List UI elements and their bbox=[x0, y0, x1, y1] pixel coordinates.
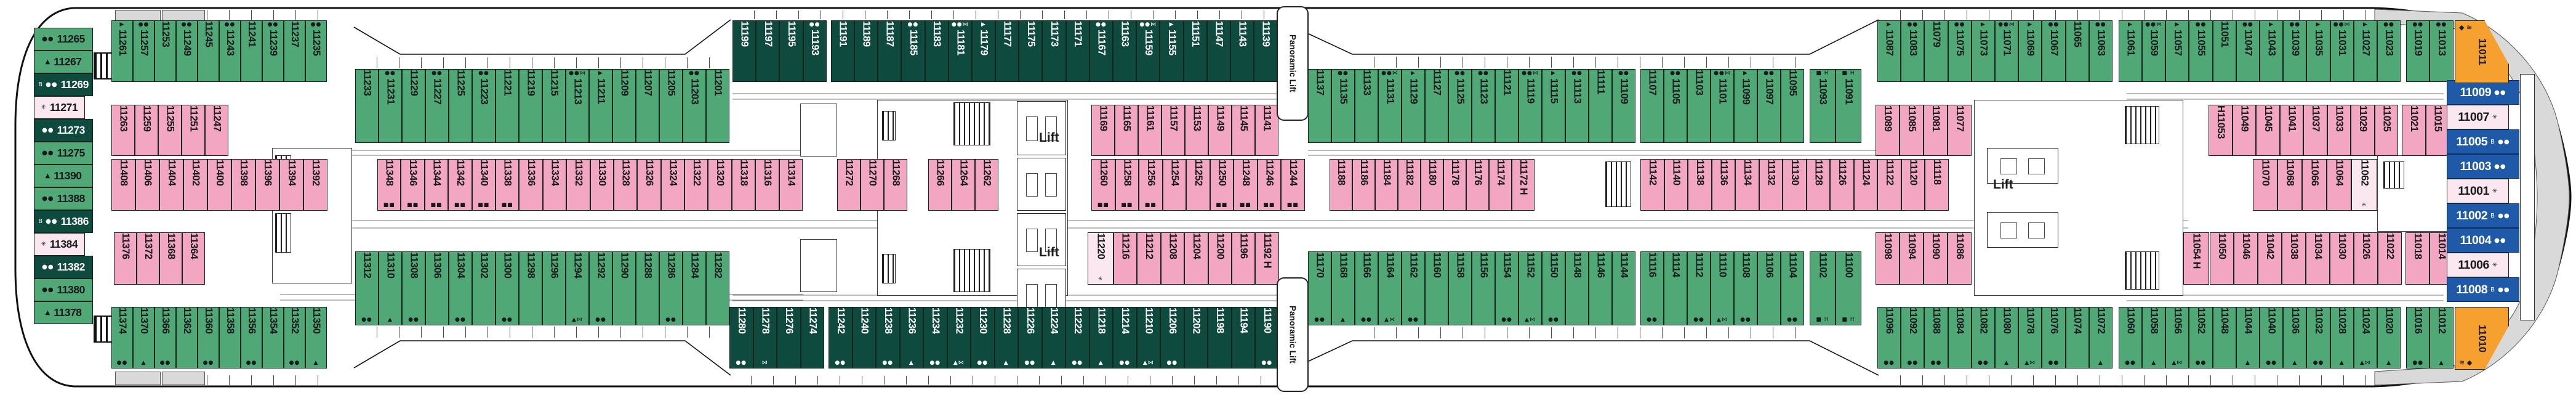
cabin-feature-icons: ▶ bbox=[120, 21, 125, 30]
cabin-11039: ●●11039 bbox=[2283, 20, 2306, 82]
cabin-number: 11112 bbox=[1693, 252, 1705, 316]
cabin-11144: 11144 bbox=[1612, 251, 1635, 325]
cabin-11267: ▲11267 bbox=[34, 51, 93, 73]
cabin-feature-icons: ●● bbox=[1618, 70, 1629, 78]
cabin-11274: 11274 bbox=[801, 307, 825, 369]
cabin-number: 11247 bbox=[211, 105, 223, 155]
cabin-number: 11278 bbox=[759, 307, 771, 359]
cabin-number: 11094 bbox=[1906, 233, 1917, 284]
cabin-feature-icons: ●●⋈ bbox=[2333, 21, 2351, 30]
cabin-11149: 11149 bbox=[1208, 105, 1232, 156]
cabin-number: 11269 bbox=[61, 78, 89, 91]
cabin-11059: ●●⋈11059 bbox=[2142, 20, 2165, 82]
lift-label: Lift bbox=[1039, 245, 1059, 260]
cabin-number: 11118 bbox=[1931, 160, 1943, 210]
staircase-icon bbox=[882, 111, 896, 140]
cabin-11244: 11244■■ bbox=[1281, 159, 1305, 211]
cabin-number: 11312 bbox=[361, 252, 373, 316]
cabin-number: 11186 bbox=[1358, 160, 1370, 210]
cabin-feature-icons: ●● bbox=[1647, 316, 1658, 325]
cabin-11042: 11042 bbox=[2258, 232, 2282, 285]
cabin-feature-icons: ●● bbox=[1166, 359, 1178, 368]
cabin-number: 11176 bbox=[1472, 160, 1483, 210]
cabin-11096: 11096●● bbox=[1877, 307, 1901, 369]
cabin-feature-icons: ▲ bbox=[2245, 359, 2250, 368]
cabin-feature-icons: ●● bbox=[2412, 359, 2423, 368]
cabin-number: 11119 bbox=[1525, 78, 1536, 142]
cabin-11125: ●●11125 bbox=[1448, 69, 1472, 143]
cabin-number: 11154 bbox=[1501, 252, 1513, 316]
cabin-11092: 11092●● bbox=[1901, 307, 1924, 369]
cabin-11258: 11258■■ bbox=[1115, 159, 1139, 211]
cabin-number: 11180 bbox=[1426, 160, 1438, 210]
cabin-11035: ▶11035 bbox=[2306, 20, 2330, 82]
cabin-number: 11294 bbox=[572, 252, 584, 316]
cabin-feature-icons: ●● bbox=[2313, 359, 2324, 368]
cabin-number: 11231 bbox=[385, 78, 396, 142]
cabin-11049: 11049 bbox=[2233, 105, 2257, 156]
cabin-11054H: 11054 H bbox=[2183, 232, 2209, 285]
cabin-number: 11052 bbox=[2195, 307, 2207, 359]
cabin-11406: 11406 bbox=[135, 159, 159, 211]
cabin-number: 11130 bbox=[1789, 160, 1800, 210]
cabin-number: 11350 bbox=[310, 307, 322, 359]
cabin-11115: ▶11115 bbox=[1542, 69, 1565, 143]
cabin-feature-icons: ▲⋈ bbox=[953, 359, 965, 368]
cabin-number: 11334 bbox=[548, 160, 560, 210]
staircase-icon bbox=[2125, 106, 2159, 144]
cabin-11099: ▶11099 bbox=[1734, 69, 1757, 143]
cabin-11027: ▶11027 bbox=[2354, 20, 2377, 82]
cabin-feature-icons: ●● bbox=[1670, 70, 1681, 78]
cabin-number: 11046 bbox=[2240, 233, 2252, 284]
cabin-11266: 11266 bbox=[928, 159, 952, 211]
cabin-11166: 11166●● bbox=[1355, 251, 1378, 325]
cabin-number: 11205 bbox=[665, 70, 677, 142]
cabin-11179: ▶11179 bbox=[972, 20, 995, 82]
stern-row-a: 1126311259112551125111247 bbox=[111, 105, 228, 156]
cabin-number: 11362 bbox=[181, 307, 193, 368]
cabin-11358: 11358 bbox=[219, 307, 241, 369]
hull-gray-cell bbox=[115, 372, 161, 385]
cabin-11060: 11060●● bbox=[2119, 307, 2142, 369]
cabin-11151: 11151 bbox=[1184, 20, 1207, 82]
cabin-feature-icons: ●● bbox=[2125, 359, 2136, 368]
cabin-feature-icons: ●● bbox=[289, 359, 300, 368]
cabin-number: 11392 bbox=[310, 160, 321, 210]
cabin-11226: 11226●● bbox=[1018, 307, 1042, 369]
cabin-number: 11076 bbox=[2048, 307, 2060, 359]
cabin-11052: 11052●● bbox=[2189, 307, 2212, 369]
cabin-number: 11139 bbox=[1260, 21, 1272, 81]
cabin-11136: 11136 bbox=[1712, 159, 1736, 211]
cabin-number: 11081 bbox=[1930, 105, 1941, 155]
cabin-number: 11122 bbox=[1884, 160, 1895, 210]
cabin-number: 11268 bbox=[890, 160, 902, 210]
cabin-number: 11158 bbox=[1455, 252, 1466, 325]
cabin-number: 11087 bbox=[1884, 30, 1895, 81]
cabin-11025: 11025 bbox=[2375, 105, 2399, 156]
cabin-11146: 11146 bbox=[1589, 251, 1612, 325]
cabin-number: 11235 bbox=[310, 30, 322, 81]
cabin-number: 11149 bbox=[1214, 105, 1226, 155]
lift-bank bbox=[1017, 101, 1066, 155]
cabin-number: 11042 bbox=[2264, 233, 2276, 284]
bow-top-green-row: ▶11087●●1108311079●●11075▶11073●●⋈11071▶… bbox=[1877, 20, 2454, 82]
cabin-11215: 11215 bbox=[542, 69, 566, 143]
cabin-11131: ●●⋈11131 bbox=[1378, 69, 1402, 143]
cabin-number: 11156 bbox=[1478, 252, 1490, 325]
cabin-number: 11222 bbox=[1072, 307, 1083, 359]
cabin-number: 11394 bbox=[286, 160, 297, 210]
cabin-11232: 11232▲⋈ bbox=[947, 307, 971, 369]
cabin-feature-icons: ●● bbox=[1884, 359, 1895, 368]
row-b-11348: 11348■■11346■■11344■■11342■■11340■■11338… bbox=[377, 159, 803, 211]
cabin-11045: 11045 bbox=[2256, 105, 2280, 156]
cabin-11113: ●●11113 bbox=[1565, 69, 1589, 143]
cabin-feature-icons: ●● bbox=[1361, 316, 1372, 325]
cabin-11261: ▶11261 bbox=[111, 20, 133, 82]
cabin-11063: ●●11063 bbox=[2089, 20, 2113, 82]
cabin-11067: ●●11067 bbox=[2042, 20, 2065, 82]
cabin-number: 11342 bbox=[454, 160, 466, 202]
cabin-number: 11215 bbox=[548, 70, 560, 142]
cabin-number: 11157 bbox=[1168, 105, 1179, 155]
cabin-11107: 11107 bbox=[1640, 69, 1664, 143]
cabin-number: 11388 bbox=[57, 192, 85, 205]
mid-top-h-cabins: ■ H11093■ H11091 bbox=[1810, 69, 1861, 143]
row-divider bbox=[2113, 20, 2119, 82]
cabin-number: 11113 bbox=[1571, 78, 1583, 142]
cabin-11187: 11187 bbox=[878, 20, 901, 82]
cabin-number: 11239 bbox=[267, 30, 279, 81]
cabin-number: 11110 bbox=[1717, 252, 1728, 316]
cabin-number: 11147 bbox=[1213, 21, 1224, 81]
cabin-number: 11115 bbox=[1548, 78, 1560, 142]
cabin-number: 11192 H bbox=[1261, 233, 1273, 284]
cabin-11100: 11100■ H bbox=[1836, 251, 1861, 325]
cabin-11238: 11238●● bbox=[876, 307, 900, 369]
cabin-feature-icons: ■■ bbox=[1216, 202, 1227, 210]
cabin-11183: 11183 bbox=[925, 20, 949, 82]
staircase-icon bbox=[275, 213, 291, 253]
cabin-11095: 11095 bbox=[1781, 69, 1804, 143]
cabin-number: 11059 bbox=[2148, 30, 2160, 81]
cabin-number: 11086 bbox=[1954, 233, 1965, 284]
cabin-11132: 11132 bbox=[1759, 159, 1783, 211]
cabin-feature-icons: ●● bbox=[1571, 70, 1583, 78]
cabin-number: 11031 bbox=[2336, 30, 2348, 81]
cabin-number: 11166 bbox=[1361, 252, 1373, 316]
cabin-feature-icons: ■■ bbox=[502, 202, 513, 210]
cabin-11370: 11370▲ bbox=[133, 307, 154, 369]
cabin-11392: 11392 bbox=[303, 159, 327, 211]
cabin-feature-icons: ●● bbox=[1096, 21, 1107, 30]
cabin-11242: 11242●● bbox=[829, 307, 853, 369]
stern-top-inset-row: 11233●●1123111229●●1122711225●●112231122… bbox=[355, 69, 729, 143]
cabin-11290: 11290 bbox=[612, 251, 636, 325]
cabin-number: 11194 bbox=[1237, 307, 1249, 368]
cabin-number: 11204 bbox=[1190, 233, 1202, 284]
cabin-11175: 11175 bbox=[1019, 20, 1042, 82]
cabin-number: 11216 bbox=[1120, 233, 1131, 284]
cabin-number: 11332 bbox=[572, 160, 584, 210]
cabin-11268: 11268 bbox=[884, 159, 907, 211]
cabin-number: 11200 bbox=[1214, 233, 1226, 284]
row-b-11188: 1118811186111841118211180111781117611174… bbox=[1330, 159, 1535, 211]
cabin-11182: 11182 bbox=[1398, 159, 1421, 211]
cabin-feature-icons: ■ H bbox=[1842, 70, 1855, 78]
cabin-number: 11308 bbox=[408, 252, 420, 316]
cabin-feature-icons: ▲ bbox=[1099, 359, 1104, 368]
cabin-number: 11121 bbox=[1501, 70, 1513, 142]
cabin-11134: 11134 bbox=[1735, 159, 1759, 211]
lift-bank bbox=[1017, 158, 1066, 211]
cabin-number: 11071 bbox=[2001, 30, 2013, 81]
cabin-number: 11336 bbox=[525, 160, 537, 210]
cabin-feature-icons: ■■ bbox=[1287, 202, 1299, 210]
cabin-feature-icons: ●● bbox=[1931, 359, 1942, 368]
lift-bank bbox=[1987, 212, 2058, 248]
cabin-number: 11330 bbox=[596, 160, 608, 210]
cabin-11304: 11304●● bbox=[449, 251, 472, 325]
cabin-11324: 11324 bbox=[661, 159, 684, 211]
cabin-11246: 11246■■ bbox=[1258, 159, 1282, 211]
cabin-feature-icons: ●● bbox=[385, 70, 396, 78]
cabin-feature-icons: ●● bbox=[908, 21, 919, 30]
cabin-number: 11111 bbox=[1595, 70, 1607, 142]
cabin-11372: 11372 bbox=[137, 232, 159, 285]
cabin-11062: 11062✳ bbox=[2351, 159, 2377, 211]
cabin-number: 11240 bbox=[858, 307, 870, 368]
cabin-feature-icons: ●● bbox=[182, 21, 193, 30]
cabin-number: 11340 bbox=[478, 160, 489, 202]
cabin-feature-icons: ✳ bbox=[41, 104, 46, 111]
cabin-11190: 11190●● bbox=[1255, 307, 1279, 369]
cabin-feature-icons: ●● bbox=[595, 316, 606, 325]
cabin-feature-icons: ●● bbox=[455, 316, 466, 325]
cabin-11362: 11362 bbox=[176, 307, 198, 369]
cabin-11273: ●●11273 bbox=[34, 119, 93, 142]
cabin-number: 11107 bbox=[1647, 70, 1658, 142]
cabin-number: 11199 bbox=[739, 21, 750, 81]
cabin-number: 11098 bbox=[1882, 233, 1893, 284]
cabin-11330: 11330 bbox=[590, 159, 614, 211]
cabin-number: 11252 bbox=[1192, 160, 1204, 210]
cabin-11044: 11044▲ bbox=[2236, 307, 2260, 369]
cabin-feature-icons: ●● bbox=[1119, 359, 1130, 368]
cabin-number: 11124 bbox=[1860, 160, 1871, 210]
cabin-number: 11004 bbox=[2460, 234, 2491, 248]
cabin-number: 11404 bbox=[166, 160, 177, 210]
cabin-11380: ●●11380 bbox=[34, 279, 93, 301]
stern-suites-column: ●●11265▲11267B ●●11269✳11271●●11273●●112… bbox=[34, 28, 93, 324]
cabin-11128: 11128 bbox=[1807, 159, 1831, 211]
cabin-number: 11189 bbox=[861, 21, 872, 81]
cabin-11348: 11348■■ bbox=[377, 159, 401, 211]
cabin-feature-icons: ≋ ◆ bbox=[2459, 359, 2472, 367]
teal-top-row: 111991119711195●●11193111911118911187●●1… bbox=[732, 20, 1277, 82]
cabin-number: 11104 bbox=[1787, 252, 1799, 316]
cabin-number: 11084 bbox=[1954, 307, 1965, 368]
cabin-11390: ▲11390 bbox=[34, 165, 93, 187]
cabin-number: 11102 bbox=[1817, 252, 1829, 316]
bow-row-c: 1105011046110421103811034110301102611022… bbox=[2210, 232, 2454, 285]
cabin-feature-icons: ●● bbox=[2095, 21, 2106, 30]
cabin-feature-icons: ▲ bbox=[388, 316, 393, 325]
cabin-number: 11043 bbox=[2266, 30, 2277, 81]
cabin-11192H: 11192 H bbox=[1255, 232, 1278, 285]
cabin-feature-icons: ▲ bbox=[2340, 359, 2345, 368]
row-b-11142: 1114211140111381113611134111321113011128… bbox=[1640, 159, 1949, 211]
stern-top-outer-row: ▶11261●●1125711253●●1124911245●●11243112… bbox=[111, 20, 327, 82]
cabin-11162: 11162●● bbox=[1402, 251, 1425, 325]
cabin-11024: 11024▲⋈ bbox=[2354, 307, 2377, 369]
cabin-11191: 11191 bbox=[831, 20, 854, 82]
cabin-11364: 11364 bbox=[182, 232, 205, 285]
cabin-11003: 11003●● bbox=[2447, 154, 2519, 179]
cabin-feature-icons: ●● bbox=[1548, 316, 1559, 325]
cabin-11203: ●●11203 bbox=[683, 69, 706, 143]
cabin-feature-icons: ▶ bbox=[2028, 21, 2032, 30]
cabin-11046: 11046 bbox=[2234, 232, 2258, 285]
cabin-number: 11265 bbox=[57, 33, 85, 46]
cabin-11222: 11222●● bbox=[1065, 307, 1089, 369]
cabin-11137: 11137 bbox=[1308, 69, 1331, 143]
cabin-11218: 11218▲ bbox=[1089, 307, 1113, 369]
cabin-number: 11123 bbox=[1478, 78, 1490, 142]
cabin-number: 11348 bbox=[383, 160, 395, 202]
cabin-number: 11179 bbox=[977, 30, 989, 81]
cabin-number: 11218 bbox=[1095, 307, 1107, 359]
cabin-number: 11212 bbox=[1143, 233, 1155, 284]
cabin-number: 11202 bbox=[1190, 307, 1202, 368]
cabin-11153: 11153 bbox=[1185, 105, 1208, 156]
cabin-11037: 11037 bbox=[2303, 105, 2327, 156]
cabin-11312: 11312●● bbox=[355, 251, 379, 325]
cabin-number: 11151 bbox=[1189, 21, 1201, 81]
lift-label: Lift bbox=[1039, 131, 1059, 145]
cabin-11382: ●●11382 bbox=[34, 256, 93, 279]
mid-bottom-green-row: 11170●●11168▲11166●●11164▲⋈11162●●111601… bbox=[1308, 251, 1804, 325]
cabin-feature-icons: ●● bbox=[42, 264, 54, 271]
cabin-number: 11210 bbox=[1142, 307, 1154, 359]
cabin-number: 11152 bbox=[1525, 252, 1536, 316]
cabin-number: 11093 bbox=[1817, 78, 1829, 142]
cabin-11029: 11029 bbox=[2351, 105, 2375, 156]
row-divider bbox=[1635, 251, 1640, 325]
cabin-11278: 11278⋈ bbox=[753, 307, 777, 369]
cabin-11334: 11334 bbox=[543, 159, 566, 211]
cabin-11119: ●●⋈11119 bbox=[1519, 69, 1542, 143]
balcony-divider-strip bbox=[355, 327, 731, 338]
cabin-number: 11003 bbox=[2460, 160, 2491, 174]
staircase-icon bbox=[2125, 251, 2159, 290]
cabin-11400: 11400 bbox=[207, 159, 231, 211]
cabin-11251: 11251 bbox=[182, 105, 205, 156]
row-divider bbox=[827, 20, 831, 82]
cabin-feature-icons: ●● bbox=[408, 316, 419, 325]
cabin-number: 11324 bbox=[667, 160, 678, 210]
cabin-feature-icons: ●● bbox=[42, 36, 54, 43]
cabin-feature-icons: ●● bbox=[502, 316, 513, 325]
cabin-feature-icons: ▶ bbox=[2175, 21, 2180, 30]
cabin-number: 11170 bbox=[1314, 252, 1326, 316]
cabin-number: 11238 bbox=[882, 307, 894, 359]
cabin-feature-icons: ▲ bbox=[2004, 359, 2009, 368]
cabin-number: 11005 bbox=[2456, 135, 2487, 149]
cabin-11204: 11204 bbox=[1184, 232, 1208, 285]
cabin-feature-icons: ⋈ bbox=[762, 359, 768, 368]
cabin-number: 11344 bbox=[430, 160, 442, 202]
cabin-number: 11144 bbox=[1618, 252, 1630, 325]
cabin-number: 11198 bbox=[1214, 307, 1226, 368]
cabin-number: 11021 bbox=[2408, 105, 2420, 155]
cabin-number: 11082 bbox=[1977, 307, 1989, 359]
cabin-11228: 11228▲ bbox=[995, 307, 1019, 369]
cabin-number: 11172 H bbox=[1517, 160, 1529, 210]
cabin-11211: ▶11211 bbox=[589, 69, 612, 143]
cabin-feature-icons: ▲⋈ bbox=[1384, 316, 1395, 325]
balcony-divider-strip bbox=[729, 376, 1280, 385]
cabin-number: 11022 bbox=[2384, 233, 2396, 284]
cabin-number: 11282 bbox=[712, 252, 724, 325]
cabin-11308: 11308●● bbox=[402, 251, 425, 325]
cabin-11016: 11016●● bbox=[2406, 307, 2430, 369]
balcony-divider-strip bbox=[355, 57, 731, 68]
cabin-feature-icons: ▶ bbox=[1887, 21, 1892, 30]
cabin-11225: 11225 bbox=[449, 69, 472, 143]
cabin-11243: ●●11243 bbox=[219, 20, 241, 82]
cabin-11084: 11084 bbox=[1948, 307, 1972, 369]
cabin-number: 11033 bbox=[2333, 105, 2345, 155]
cabin-number: 11233 bbox=[361, 70, 373, 142]
cabin-number: 11163 bbox=[1119, 21, 1131, 81]
cabin-feature-icons: ●● bbox=[1314, 316, 1325, 325]
cabin-11252: 11252 bbox=[1186, 159, 1210, 211]
cabin-11216: 11216 bbox=[1113, 232, 1137, 285]
cabin-11097: ●●11097 bbox=[1757, 69, 1781, 143]
cabin-number: 11068 bbox=[2284, 160, 2296, 210]
cabin-number: 11338 bbox=[502, 160, 513, 202]
cabin-number: 11292 bbox=[595, 252, 607, 316]
cabin-number: 11164 bbox=[1384, 252, 1396, 316]
cabin-11255: 11255 bbox=[158, 105, 182, 156]
cabin-number: 11006 bbox=[2458, 258, 2489, 272]
cabin-number: 11196 bbox=[1238, 233, 1250, 284]
cabin-11195: 11195 bbox=[779, 20, 803, 82]
cabin-number: 11237 bbox=[289, 21, 300, 81]
cabin-number: 11168 bbox=[1338, 252, 1349, 316]
cabin-11326: 11326 bbox=[637, 159, 660, 211]
cabin-feature-icons: ●●⋈ bbox=[2145, 21, 2162, 30]
cabin-11231: ●●11231 bbox=[379, 69, 402, 143]
cabin-11374: 11374●● bbox=[111, 307, 133, 369]
cabin-number: 11145 bbox=[1238, 105, 1250, 155]
cabin-number: 11143 bbox=[1237, 21, 1248, 81]
cabin-number: 11280 bbox=[736, 307, 747, 359]
cabin-11176: 11176 bbox=[1466, 159, 1489, 211]
cabin-11292: 11292●● bbox=[589, 251, 612, 325]
cabin-11030: 11030 bbox=[2330, 232, 2354, 285]
cabin-number: 11083 bbox=[1907, 30, 1919, 81]
cabin-11032: 11032●● bbox=[2306, 307, 2330, 369]
cabin-number: 11184 bbox=[1381, 160, 1392, 210]
cabin-feature-icons: ●● bbox=[1024, 359, 1035, 368]
cabin-11081: 11081 bbox=[1924, 105, 1948, 156]
cabin-11262: 11262 bbox=[975, 159, 998, 211]
cabin-number: 11078 bbox=[2024, 307, 2036, 359]
